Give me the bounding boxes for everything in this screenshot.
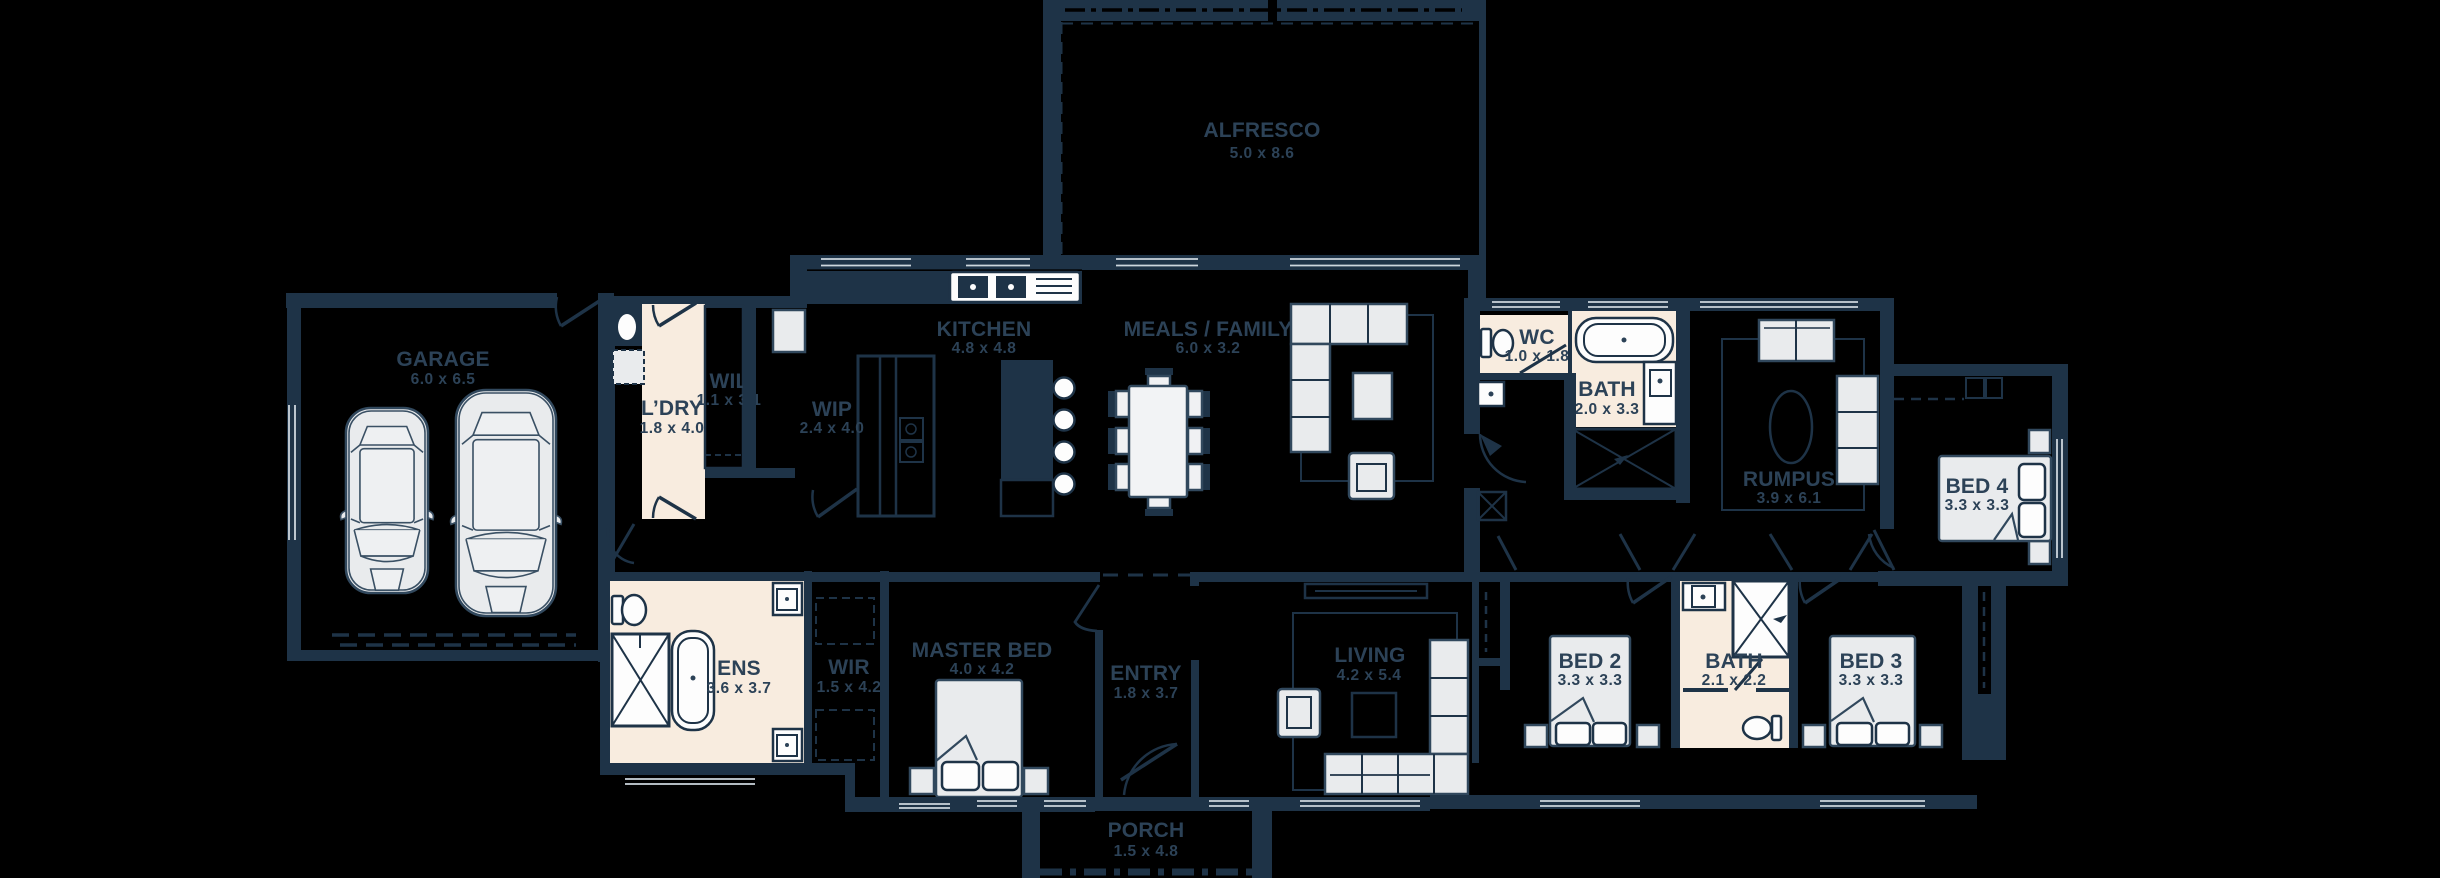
svg-text:BED 3: BED 3 [1840, 650, 1903, 673]
svg-text:PORCH: PORCH [1108, 819, 1185, 842]
svg-text:ENS: ENS [717, 657, 761, 680]
svg-text:WIR: WIR [828, 656, 869, 679]
svg-text:1.5 x 4.2: 1.5 x 4.2 [817, 679, 882, 696]
svg-text:1.5 x 4.8: 1.5 x 4.8 [1114, 843, 1179, 860]
svg-text:BED 4: BED 4 [1946, 475, 2009, 498]
svg-text:BATH: BATH [1578, 378, 1636, 401]
svg-text:KITCHEN: KITCHEN [937, 318, 1032, 341]
svg-text:6.0 x 3.2: 6.0 x 3.2 [1176, 340, 1241, 357]
svg-text:2.0 x 3.3: 2.0 x 3.3 [1575, 401, 1640, 418]
svg-text:ENTRY: ENTRY [1110, 662, 1181, 685]
svg-text:4.8 x 4.8: 4.8 x 4.8 [952, 340, 1017, 357]
svg-text:L’DRY: L’DRY [641, 397, 703, 420]
svg-text:3.6 x 3.7: 3.6 x 3.7 [707, 680, 772, 697]
svg-text:MASTER BED: MASTER BED [912, 639, 1053, 662]
svg-text:2.4 x 4.0: 2.4 x 4.0 [800, 420, 865, 437]
svg-text:4.0 x 4.2: 4.0 x 4.2 [950, 661, 1015, 678]
svg-text:3.3 x 3.3: 3.3 x 3.3 [1839, 672, 1904, 689]
svg-text:1.8 x 4.0: 1.8 x 4.0 [640, 420, 705, 437]
svg-text:ALFRESCO: ALFRESCO [1203, 119, 1320, 142]
svg-text:LIVING: LIVING [1334, 644, 1405, 667]
svg-text:3.9 x 6.1: 3.9 x 6.1 [1757, 490, 1822, 507]
svg-text:WC: WC [1519, 326, 1554, 349]
svg-text:5.0 x 8.6: 5.0 x 8.6 [1230, 145, 1295, 162]
svg-text:6.0 x 6.5: 6.0 x 6.5 [411, 371, 476, 388]
svg-text:BATH: BATH [1705, 650, 1763, 673]
svg-text:2.1 x 2.2: 2.1 x 2.2 [1702, 672, 1767, 689]
svg-text:WIL: WIL [709, 370, 748, 393]
svg-text:BED 2: BED 2 [1559, 650, 1622, 673]
svg-text:MEALS / FAMILY: MEALS / FAMILY [1124, 318, 1293, 341]
svg-text:3.3 x 3.3: 3.3 x 3.3 [1945, 497, 2010, 514]
svg-text:1.8 x 3.7: 1.8 x 3.7 [1114, 685, 1179, 702]
svg-text:WIP: WIP [812, 398, 852, 421]
svg-text:GARAGE: GARAGE [396, 348, 489, 371]
svg-text:4.2 x 5.4: 4.2 x 5.4 [1337, 667, 1402, 684]
svg-text:3.3 x 3.3: 3.3 x 3.3 [1558, 672, 1623, 689]
svg-text:RUMPUS: RUMPUS [1743, 468, 1835, 491]
